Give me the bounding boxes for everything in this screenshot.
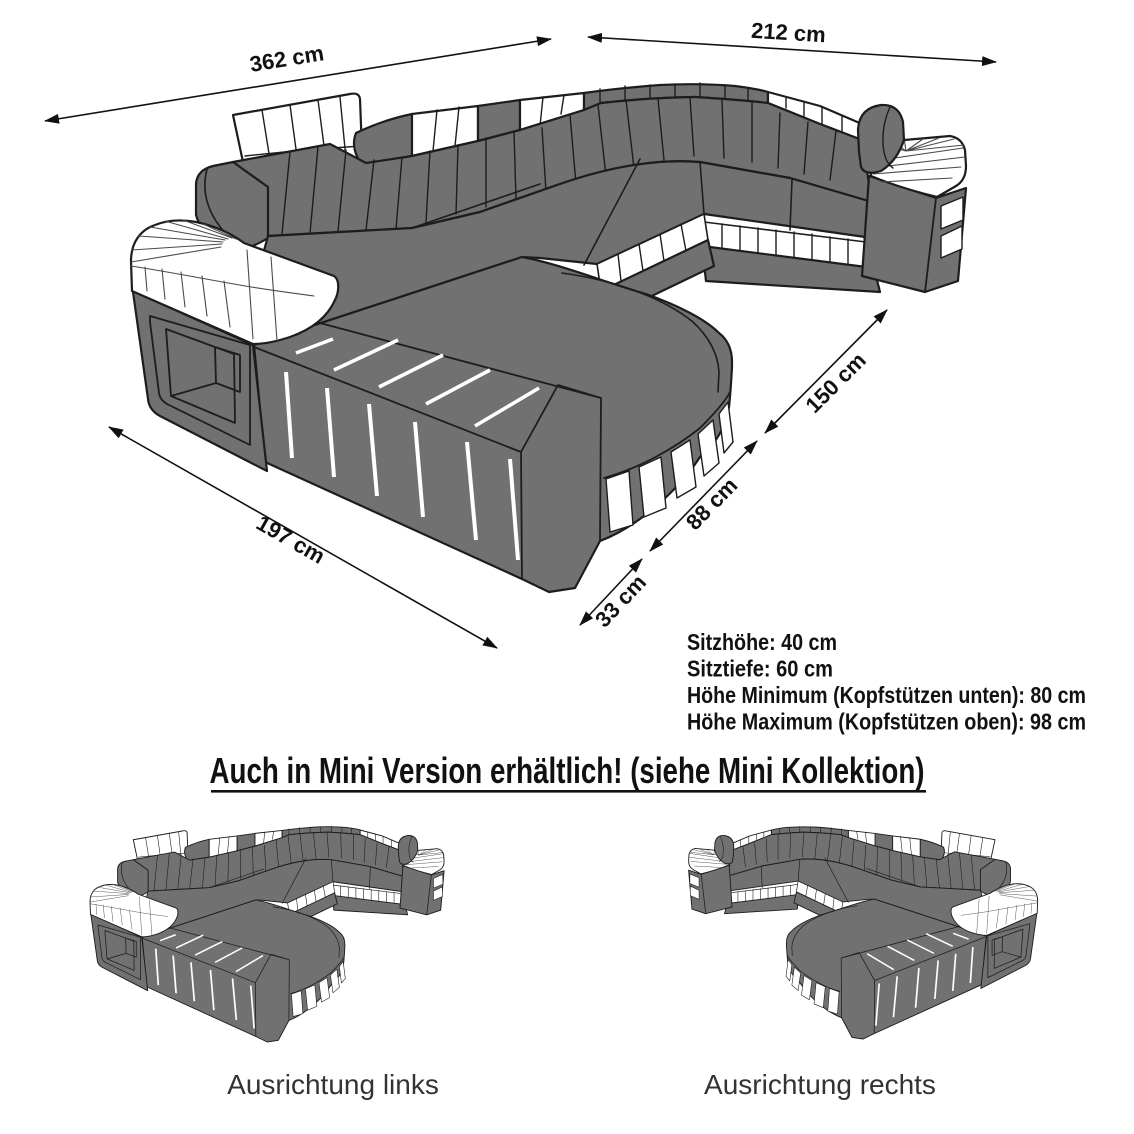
svg-text:Ausrichtung links: Ausrichtung links: [227, 1069, 439, 1100]
svg-text:Sitzhöhe: 40 cm: Sitzhöhe: 40 cm: [687, 629, 837, 655]
svg-text:362 cm: 362 cm: [248, 40, 326, 77]
svg-text:Auch in Mini Version erhältlic: Auch in Mini Version erhältlich! (siehe …: [210, 750, 925, 791]
svg-text:150 cm: 150 cm: [800, 347, 870, 417]
svg-text:33 cm: 33 cm: [590, 570, 651, 633]
svg-text:212 cm: 212 cm: [750, 18, 826, 48]
svg-text:Höhe Maximum (Kopfstützen oben: Höhe Maximum (Kopfstützen oben): 98 cm: [687, 709, 1086, 735]
svg-text:197 cm: 197 cm: [252, 510, 329, 569]
svg-text:Höhe Minimum (Kopfstützen unte: Höhe Minimum (Kopfstützen unten): 80 cm: [687, 682, 1086, 708]
svg-text:Ausrichtung rechts: Ausrichtung rechts: [704, 1069, 936, 1100]
svg-text:Sitztiefe: 60 cm: Sitztiefe: 60 cm: [687, 656, 833, 682]
